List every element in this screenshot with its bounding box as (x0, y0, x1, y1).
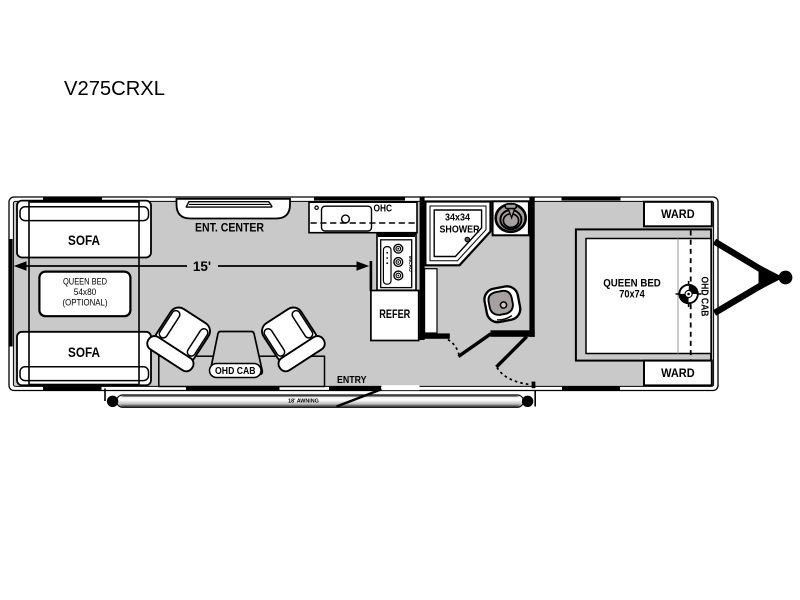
svg-text:REFER: REFER (379, 309, 411, 321)
svg-text:MICRO: MICRO (407, 256, 413, 272)
svg-text:15': 15' (193, 259, 211, 274)
svg-text:ENTRY: ENTRY (337, 374, 367, 386)
svg-text:OHD CAB: OHD CAB (215, 366, 256, 377)
svg-text:WARD: WARD (661, 368, 695, 380)
svg-text:ENT. CENTER: ENT. CENTER (195, 221, 264, 235)
svg-text:V275CRXL: V275CRXL (64, 77, 165, 100)
svg-text:70x74: 70x74 (619, 289, 645, 301)
svg-text:WARD: WARD (661, 209, 695, 221)
svg-text:18' AWNING: 18' AWNING (288, 398, 319, 404)
svg-text:QUEEN BED: QUEEN BED (63, 276, 107, 287)
svg-text:SOFA: SOFA (68, 345, 100, 360)
svg-text:OHC: OHC (374, 204, 393, 215)
svg-text:34x34: 34x34 (445, 213, 470, 224)
svg-text:SOFA: SOFA (68, 233, 100, 248)
svg-text:(OPTIONAL): (OPTIONAL) (63, 297, 108, 308)
svg-text:SHOWER: SHOWER (440, 225, 481, 236)
svg-text:OHD CAB: OHD CAB (699, 277, 710, 317)
svg-text:54x80: 54x80 (74, 286, 97, 297)
